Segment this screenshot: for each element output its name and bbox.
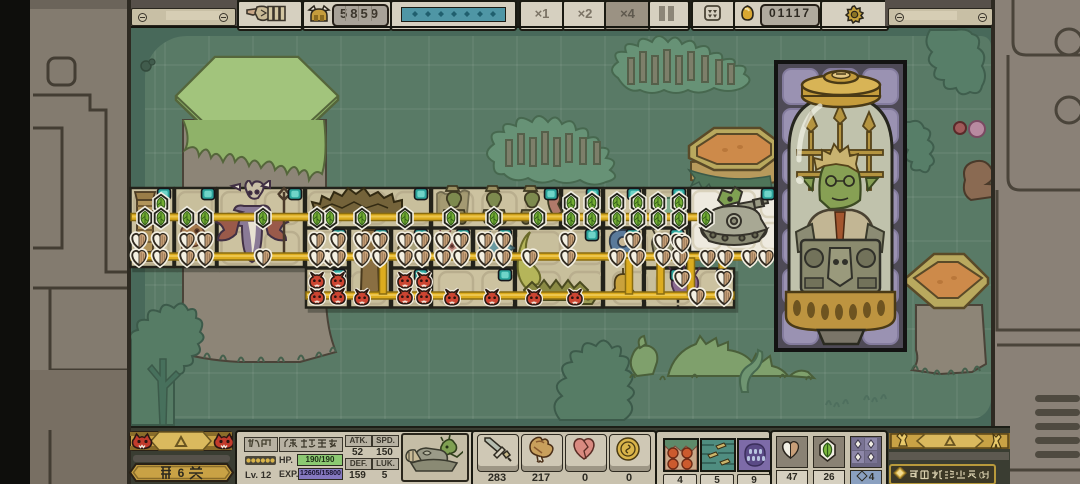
svg-text:6: 6 xyxy=(178,466,185,480)
